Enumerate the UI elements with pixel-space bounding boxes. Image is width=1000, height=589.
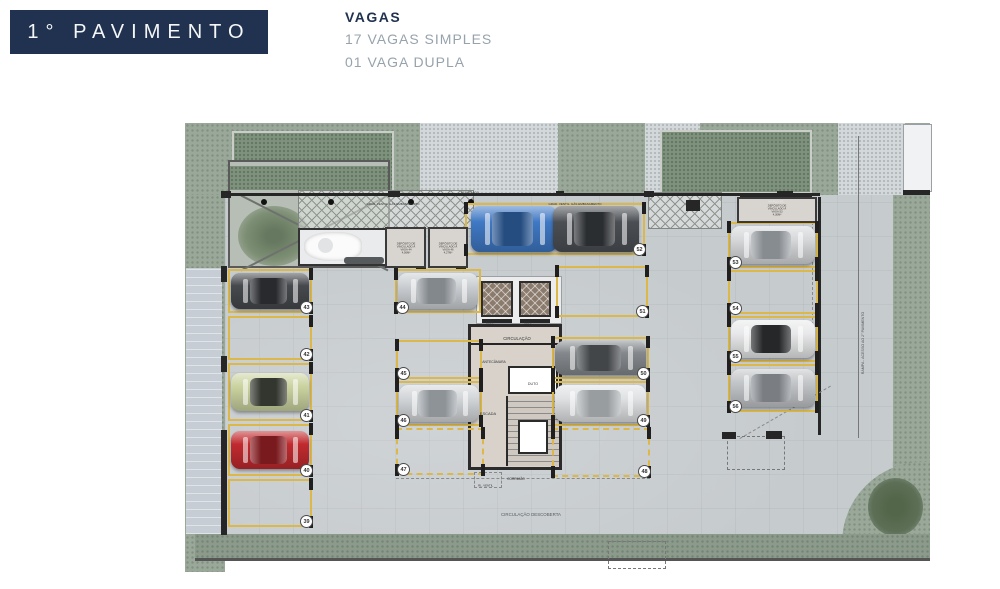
car-43 (231, 273, 309, 309)
car-46 (399, 385, 479, 422)
gate-marking (608, 541, 666, 569)
windshield (463, 391, 468, 416)
wheel-stop (815, 221, 819, 233)
wheel-stop (551, 427, 555, 439)
wheel-stop (551, 336, 555, 348)
spot-badge-41: 41 (300, 409, 313, 422)
wall-segment (221, 191, 231, 198)
spot-badge-45: 45 (397, 367, 410, 380)
spot-number: 44 (399, 304, 405, 310)
deposit-label: DEPÓSITO DE VINCULADO À VAGA 53 4,30M² (740, 204, 815, 216)
windshield (744, 326, 749, 352)
wheel-stop (479, 415, 483, 427)
wheel-stop (309, 268, 313, 280)
bush (868, 478, 923, 536)
parking-spot-48 (552, 428, 650, 477)
car-roof (250, 278, 287, 305)
windshield (293, 279, 298, 303)
plan-label-text: CORRIMÃO (507, 477, 525, 481)
spot-badge-49: 49 (637, 414, 650, 427)
spot-number: 50 (640, 370, 646, 376)
car-roof (418, 390, 456, 417)
wheel-stop (727, 269, 731, 281)
wheel-stop (815, 351, 819, 363)
spot-number: 54 (732, 305, 738, 311)
reserved-area (727, 436, 785, 470)
windshield (744, 375, 749, 401)
plan-label-text: RAMPA - ACESSO AO 2° PAVIMENTO (861, 312, 865, 374)
spot-number: 48 (641, 468, 647, 474)
spot-number: 47 (400, 466, 406, 472)
pergola-post (261, 199, 267, 205)
walkway-crossing (838, 123, 905, 195)
tub-drain (318, 238, 333, 253)
wheel-stop (551, 368, 555, 380)
wheel-stop (555, 306, 559, 318)
wheel-stop (394, 268, 398, 280)
wall-top (228, 193, 820, 196)
pergola-post (328, 199, 334, 205)
windshield (567, 213, 572, 244)
wheel-stop (815, 257, 819, 269)
windshield (293, 437, 298, 463)
spot-badge-50: 50 (637, 367, 650, 380)
wheel-stop (815, 303, 819, 315)
wall-segment (221, 430, 227, 535)
wheel-stop (464, 202, 468, 214)
windshield (622, 213, 627, 244)
spot-number: 53 (732, 259, 738, 265)
car-53 (731, 226, 815, 264)
wheel-stop (309, 478, 313, 490)
windshield (412, 391, 417, 416)
spot-badge-56: 56 (729, 400, 742, 413)
spot-badge-48: 48 (638, 465, 651, 478)
spot-badge-52: 52 (633, 243, 646, 256)
wheel-stop (551, 466, 555, 478)
car-roof (751, 374, 791, 402)
car-49 (555, 385, 646, 422)
wall-segment (644, 191, 654, 197)
windshield (798, 375, 803, 401)
plan-label-text: DUTO (528, 382, 538, 386)
spot-badge-42: 42 (300, 348, 313, 361)
car-52-b (553, 206, 639, 252)
windshield (570, 346, 575, 369)
core-wall (471, 343, 559, 345)
spot-badge-40: 40 (300, 464, 313, 477)
wall-segment (221, 356, 227, 372)
car-roof (574, 212, 615, 246)
wheel-stop (815, 363, 819, 375)
planter-strip (230, 166, 388, 190)
planting-bed (660, 130, 812, 194)
spot-badge-47: 47 (397, 463, 410, 476)
wheel-stop (551, 415, 555, 427)
windshield (485, 213, 490, 244)
deposit-room-2: DEPÓSITO DE VINCULADO À VAGA 46 4,27M² (428, 227, 468, 268)
spot-number: 42 (303, 351, 309, 357)
wheel-stop (479, 368, 483, 380)
windshield (570, 391, 575, 416)
windshield (243, 279, 248, 303)
grass-bottom-band (195, 534, 930, 560)
windshield (628, 346, 633, 369)
spot-number: 43 (303, 304, 309, 310)
wheel-stop (481, 464, 485, 476)
wheel-stop (479, 380, 483, 392)
curb-line (195, 558, 930, 561)
plan-label-text: ELEV. (524, 321, 532, 324)
windshield (243, 379, 248, 405)
spot-badge-44: 44 (396, 301, 409, 314)
spot-number: 49 (640, 417, 646, 423)
car-roof (577, 345, 621, 370)
wheel-stop (815, 315, 819, 327)
windshield (628, 391, 633, 416)
spot-number: 51 (639, 308, 645, 314)
plan-label-text: CIRCULAÇÃO DESCOBERTA (501, 513, 561, 518)
wheel-stop (309, 315, 313, 327)
walkway-crossing (420, 123, 558, 195)
spot-number: 55 (732, 353, 738, 359)
spot-number: 56 (732, 403, 738, 409)
plan-label-text: ANTECÂMARA (482, 360, 506, 364)
pergola-post (686, 200, 700, 211)
legend-heading: VAGAS (345, 9, 401, 25)
windshield (798, 326, 803, 352)
wheel-stop (395, 339, 399, 351)
spot-badge-55: 55 (729, 350, 742, 363)
wheel-stop (642, 202, 646, 214)
car-56 (731, 369, 815, 407)
plan-label-text: PERGOLADO (461, 191, 479, 194)
wheel-stop (727, 315, 731, 327)
parking-spot-51 (556, 266, 648, 317)
wheel-stop (309, 423, 313, 435)
legend-item-dupla: 01 VAGA DUPLA (345, 54, 465, 70)
spot-number: 46 (400, 417, 406, 423)
paver-strip (186, 268, 222, 534)
wheel-stop (395, 427, 399, 439)
car-roof (417, 278, 455, 305)
wheel-stop (646, 380, 650, 392)
wall-segment (556, 191, 564, 196)
boundary-fence (903, 124, 932, 192)
wheel-stop (815, 269, 819, 281)
wheel-stop (309, 362, 313, 374)
floor-title-bar: 1° PAVIMENTO (10, 10, 268, 54)
elevator-shaft-2 (519, 281, 551, 317)
door-mat (344, 257, 384, 264)
spot-number: 40 (303, 467, 309, 473)
spot-badge-43: 43 (300, 301, 313, 314)
car-55 (731, 320, 815, 358)
wheel-stop (645, 265, 649, 277)
plan-label-text: GRAD. VENTIL. GÁS EMBASAMENTO (367, 202, 420, 205)
plan-label-text: CIRCULAÇÃO (503, 337, 531, 342)
page-title: 1° PAVIMENTO (27, 21, 250, 44)
windshield (243, 437, 248, 463)
legend-item-simple: 17 VAGAS SIMPLES (345, 31, 492, 47)
car-roof (250, 378, 287, 406)
car-roof (751, 325, 791, 353)
wheel-stop (555, 265, 559, 277)
wheel-stop (647, 427, 651, 439)
plan-label-text: MARQUISE (769, 200, 784, 203)
wheel-stop (479, 339, 483, 351)
wheel-stop (551, 380, 555, 392)
wheel-stop (727, 221, 731, 233)
plan-label-text: ESCADA (480, 412, 496, 416)
wheel-stop (727, 363, 731, 375)
car-roof (250, 436, 287, 464)
stairwell-opening (518, 420, 548, 454)
car-roof (492, 212, 533, 246)
spot-number: 39 (303, 518, 309, 524)
car-50 (555, 341, 646, 375)
wheel-stop (815, 401, 819, 413)
wheel-stop (722, 432, 736, 439)
wheel-stop (481, 427, 485, 439)
spot-number: 41 (303, 412, 309, 418)
spot-badge-53: 53 (729, 256, 742, 269)
floorplan-page: 1° PAVIMENTO VAGAS 17 VAGAS SIMPLES 01 V… (0, 0, 1000, 589)
car-41 (231, 373, 309, 411)
wall-segment (388, 191, 400, 197)
wall-segment (221, 266, 227, 282)
spot-badge-51: 51 (636, 305, 649, 318)
plan-label-text: RL. VENTIL. (478, 484, 494, 487)
wheel-stop (766, 431, 782, 439)
spot-badge-54: 54 (729, 302, 742, 315)
windshield (293, 379, 298, 405)
elevator-shaft-1 (481, 281, 513, 317)
wheel-stop (646, 336, 650, 348)
windshield (540, 213, 545, 244)
spot-number: 45 (400, 370, 406, 376)
car-40 (231, 431, 309, 469)
car-roof (577, 390, 621, 417)
windshield (462, 279, 467, 303)
grass-right-band (893, 195, 930, 475)
spot-badge-46: 46 (397, 414, 410, 427)
wheel-stop (464, 244, 468, 256)
windshield (798, 232, 803, 258)
dimension-line (858, 136, 859, 438)
deposit-label: DEPÓSITO DE VINCULADO À VAGA 46 4,27M² (411, 241, 486, 253)
car-roof (751, 231, 791, 259)
spot-number: 52 (636, 246, 642, 252)
windshield (411, 279, 416, 303)
spot-badge-39: 39 (300, 515, 313, 528)
plan-label-text: ELEV. (486, 321, 494, 324)
car-44 (398, 273, 478, 309)
pergola-lattice (648, 192, 722, 229)
wheel-stop (395, 380, 399, 392)
windshield (744, 232, 749, 258)
plan-label-text: GRAD. VENTIL. GÁS EMBASAMENTO (549, 202, 602, 205)
